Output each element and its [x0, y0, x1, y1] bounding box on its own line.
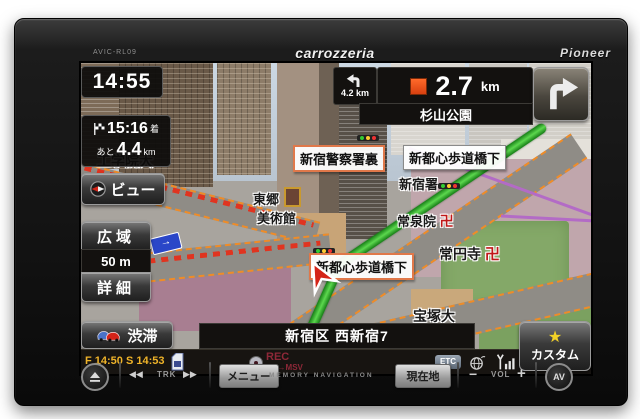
eta-remaining-unit: km [144, 147, 156, 157]
main-guidance-panel: 2.7 km [377, 67, 533, 105]
av-label: AV [553, 372, 565, 382]
maker-logo: Pioneer [560, 46, 611, 60]
current-address-bar: 新宿区 西新宿7 [199, 323, 475, 349]
right-turn-arrow-icon [542, 75, 580, 113]
guidance-unit: km [481, 79, 500, 94]
map-label-museum: 美術館 [257, 208, 296, 227]
location-label: 現在地 [407, 368, 440, 384]
map-label-joenji: 常円寺 卍 [439, 243, 500, 264]
map-scale-display: 50 m [81, 249, 151, 274]
map-building [217, 63, 271, 175]
compass-icon [90, 181, 106, 197]
view-button[interactable]: ビュー [81, 173, 165, 205]
traffic-info-button[interactable]: 渋滞 [81, 321, 173, 349]
guidance-point-icon [410, 78, 427, 95]
bottom-bezel: ◀◀ TRK ▶▶ メニュー MEMORY NAVIGATION 現在地 − V… [17, 357, 625, 403]
sub-guidance-distance: 4.2 km [341, 88, 369, 98]
eta-panel: 15:16 着 あと 4.4 km [81, 115, 171, 167]
memory-navigation-label: MEMORY NAVIGATION [269, 372, 374, 379]
eta-remaining-prefix: あと [96, 145, 114, 158]
trk-label: TRK [157, 370, 176, 379]
guidance-waypoint-bar: 杉山公園 [359, 103, 533, 125]
eta-time: 15:16 [107, 120, 148, 138]
av-button[interactable]: AV [545, 363, 573, 391]
sub-guidance-panel: 4.2 km [333, 67, 377, 105]
star-icon: ★ [548, 330, 562, 346]
map-label-shinjuku-police: 新宿署 [399, 174, 460, 193]
temple-manji-icon: 卍 [440, 213, 454, 229]
museum-icon [284, 187, 301, 207]
eject-icon [89, 371, 101, 383]
nav-screen: → 工学院大 新宿警察署裏 新都心歩道橋下 東郷 美術館 新宿署 常泉院 卍 常… [81, 63, 591, 374]
shinjuku-police-text: 新宿署 [399, 177, 438, 192]
current-address: 新宿区 西新宿7 [285, 326, 389, 346]
left-turn-arrow-icon [346, 74, 364, 88]
bridge-top-text: 新都心歩道橋下 [409, 151, 500, 166]
zoom-in-label: 詳細 [97, 277, 135, 298]
traffic-cars-icon [96, 328, 122, 342]
menu-label: メニュー [227, 368, 271, 384]
goal-flag-icon [93, 123, 105, 135]
turn-direction-button[interactable] [533, 67, 589, 121]
head-unit: AVIC-RL09 carrozzeria Pioneer [14, 18, 628, 406]
eta-suffix: 着 [150, 122, 159, 135]
map-label-togo: 東郷 [253, 189, 279, 208]
oneway-arrow: → [159, 235, 173, 249]
track-prev-button[interactable]: ◀◀ [129, 369, 143, 380]
zoom-in-button[interactable]: 詳細 [81, 272, 151, 302]
brand-logo: carrozzeria [31, 45, 639, 61]
eta-remaining-value: 4.4 [116, 139, 141, 160]
vol-label: VOL [491, 370, 510, 379]
top-bezel: AVIC-RL09 carrozzeria Pioneer [31, 39, 639, 65]
current-location-button[interactable]: 現在地 [395, 364, 451, 388]
volume-up-button[interactable]: + [517, 365, 526, 382]
volume-down-button[interactable]: − [469, 366, 477, 382]
view-label: ビュー [110, 179, 155, 200]
guidance-distance: 2.7 [435, 71, 473, 102]
clock-panel: 14:55 [81, 66, 163, 98]
zoom-out-label: 広域 [97, 226, 135, 247]
map-label-police-rear: 新宿警察署裏 [293, 145, 385, 172]
police-rear-text: 新宿警察署裏 [300, 152, 378, 167]
map-label-bridge-top: 新都心歩道橋下 [403, 145, 506, 170]
josenin-text: 常泉院 [397, 214, 436, 229]
scale-value: 50 m [101, 254, 131, 269]
map-label-josenin: 常泉院 卍 [397, 211, 454, 231]
joenji-text: 常円寺 [439, 246, 481, 262]
guidance-waypoint: 杉山公園 [420, 105, 472, 124]
temple-manji-icon: 卍 [485, 246, 500, 263]
traffic-light-icon [357, 135, 379, 141]
traffic-label: 渋滞 [127, 325, 157, 346]
traffic-light-icon [438, 183, 460, 189]
zoom-out-button[interactable]: 広域 [81, 221, 151, 251]
eject-button[interactable] [81, 363, 109, 391]
clock-time: 14:55 [93, 70, 152, 94]
track-next-button[interactable]: ▶▶ [183, 369, 197, 380]
